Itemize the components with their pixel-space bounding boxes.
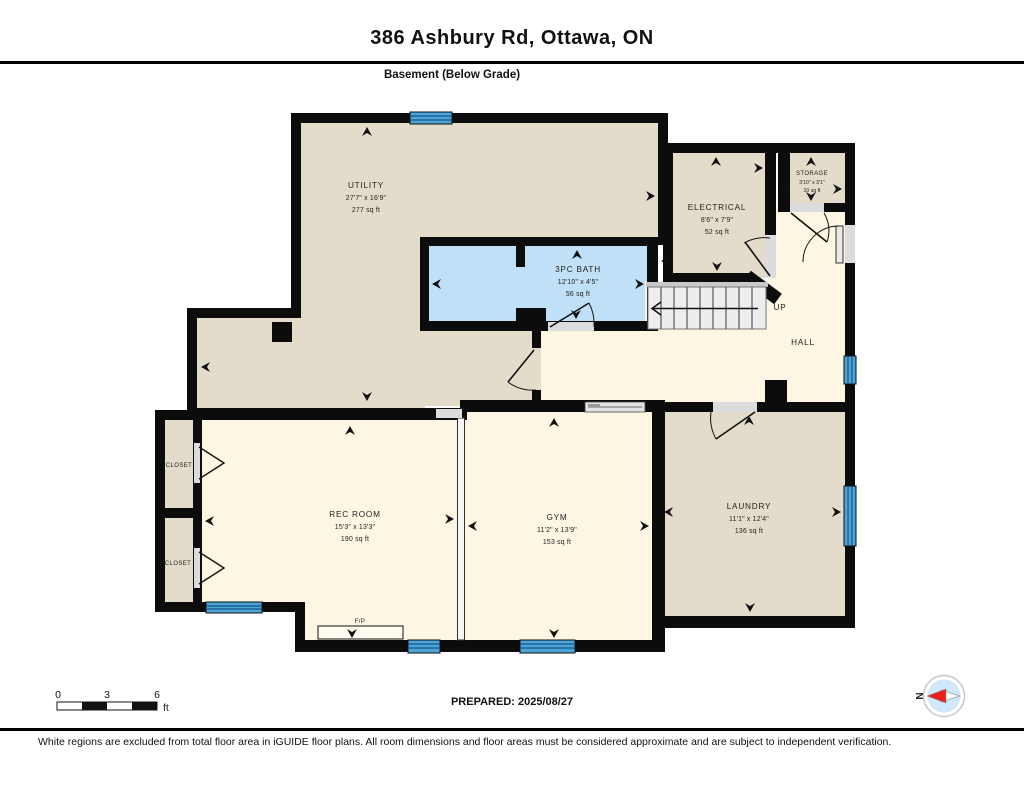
rec-gym-divider [458,418,465,640]
bath-label: 3PC BATH [555,265,601,274]
utility-label: UTILITY [348,181,384,190]
staircase [646,282,768,329]
room-utility-fill-2 [296,237,425,318]
gym-label: GYM [546,513,567,522]
room-gym-fill [463,408,655,644]
gym-area: 153 sq ft [543,539,571,546]
storage-dims: 3'10" x 3'1" [799,180,825,186]
closet-lower-label: CLOSET [165,561,191,567]
storage-area: 10 sq ft [803,188,821,194]
utility-dims: 27'7" x 16'9" [346,195,387,202]
rec-room-area: 190 sq ft [341,536,369,543]
window-gym-bottom [520,640,575,653]
laundry-dims: 11'1" x 12'4" [729,516,769,523]
laundry-label: LAUNDRY [727,502,772,511]
electrical-dims: 8'6" x 7'9" [701,217,734,224]
hall-label: HALL [791,338,815,347]
window-laundry-right [844,486,856,546]
stairs-up-label: UP [774,303,787,312]
bath-area: 56 sq ft [566,291,590,298]
room-storage-fill [783,148,848,208]
hall-door-leaf [836,226,843,263]
room-laundry-fill [660,408,848,620]
window-rec-left-bottom [206,602,262,613]
rec-room-label: REC ROOM [329,510,380,519]
footer-divider [0,728,1024,731]
room-fills [162,118,848,644]
room-electrical-fill [668,148,770,278]
closet-lower-fill [162,515,196,605]
floor-plan-svg: UTILITY 27'7" x 16'9" 277 sq ft 3PC BATH… [0,0,1024,791]
gym-dims: 11'2" x 13'9" [537,527,577,534]
rec-room-dims: 15'3" x 13'3" [335,524,376,531]
storage-label: STORAGE [796,171,828,177]
gym-pocket-door [585,402,645,412]
window-rec-bottom [408,640,440,653]
disclaimer-text: White regions are excluded from total fl… [38,736,998,748]
fireplace-label: F/P [355,619,366,625]
closet-upper-label: CLOSET [166,463,192,469]
window-utility-top [410,112,452,124]
room-utility-fill-3 [192,313,425,410]
room-utility-fill [296,118,663,242]
prepared-date: PREPARED: 2025/08/27 [0,696,1024,708]
fireplace [318,626,403,639]
electrical-area: 52 sq ft [705,229,729,236]
electrical-label: ELECTRICAL [688,203,747,212]
utility-area: 277 sq ft [352,207,380,214]
laundry-area: 136 sq ft [735,528,763,535]
window-hall-right [844,356,856,384]
bath-dims: 12'10" x 4'5" [558,279,599,286]
